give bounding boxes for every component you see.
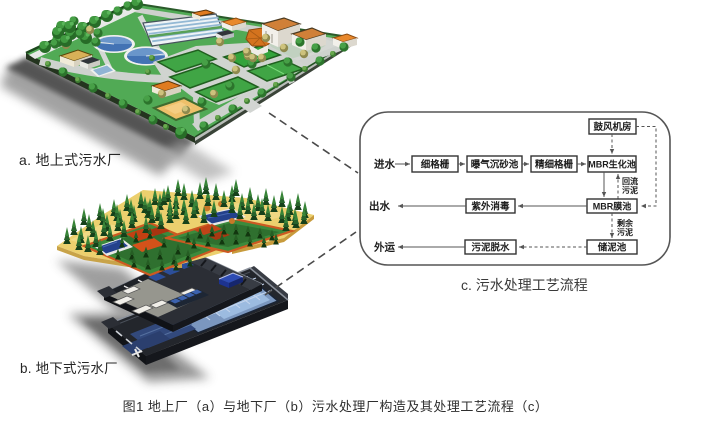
svg-text:污泥: 污泥 — [617, 227, 633, 237]
svg-text:曝气沉砂池: 曝气沉砂池 — [471, 159, 519, 171]
svg-text:细格栅: 细格栅 — [421, 159, 450, 171]
svg-text:紫外消毒: 紫外消毒 — [471, 201, 510, 213]
svg-text:污泥脱水: 污泥脱水 — [471, 242, 510, 254]
svg-text:进水: 进水 — [374, 158, 395, 171]
svg-text:c. 污水处理工艺流程: c. 污水处理工艺流程 — [461, 277, 588, 293]
svg-text:剩余: 剩余 — [617, 218, 634, 228]
svg-text:出水: 出水 — [369, 200, 390, 213]
svg-text:a. 地上式污水厂: a. 地上式污水厂 — [19, 152, 121, 168]
svg-text:回流: 回流 — [622, 176, 638, 186]
svg-text:储泥池: 储泥池 — [598, 242, 627, 254]
svg-text:MBR膜池: MBR膜池 — [593, 201, 632, 212]
svg-text:污泥: 污泥 — [622, 185, 638, 195]
svg-text:图1 地上厂（a）与地下厂（b）污水处理厂构造及其处理工艺: 图1 地上厂（a）与地下厂（b）污水处理厂构造及其处理工艺流程（c） — [123, 399, 549, 414]
svg-text:精细格栅: 精细格栅 — [535, 159, 574, 171]
svg-text:外运: 外运 — [373, 241, 395, 254]
svg-text:鼓风机房: 鼓风机房 — [593, 121, 631, 133]
svg-text:MBR生化池: MBR生化池 — [588, 159, 636, 170]
svg-text:b. 地下式污水厂: b. 地下式污水厂 — [20, 361, 118, 376]
